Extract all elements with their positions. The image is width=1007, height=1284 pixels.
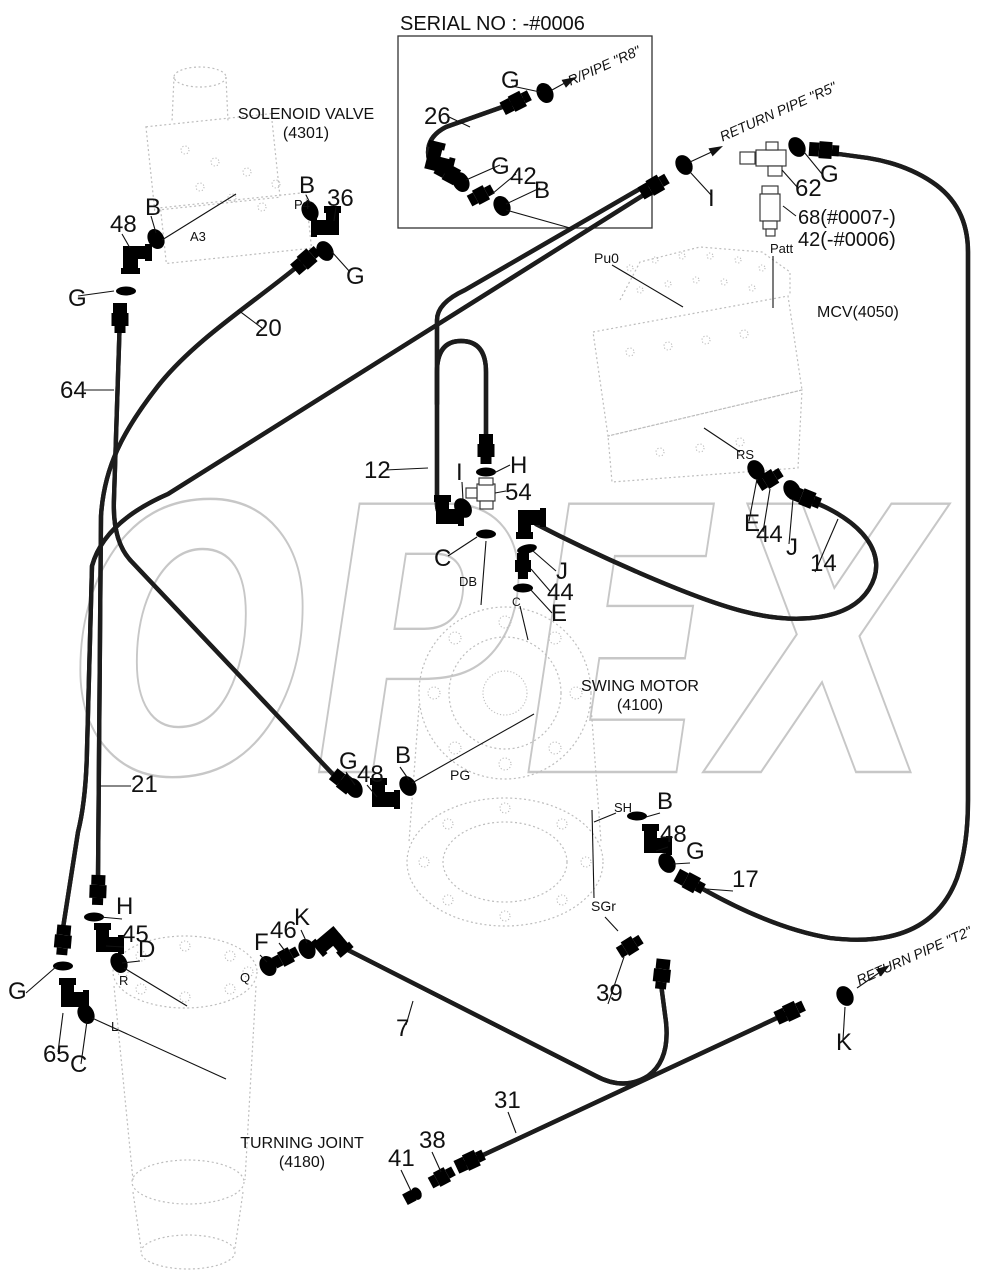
hose-fitting (773, 998, 807, 1026)
label-c: C (434, 545, 451, 572)
o-ring-B (490, 193, 514, 219)
hose-fitting (808, 140, 839, 159)
label-20: 20 (255, 315, 282, 342)
label-g: G (820, 161, 839, 188)
label-turning-joint: TURNING JOINT (240, 1135, 364, 1152)
label-pu0: Pu0 (594, 250, 619, 266)
hydraulic-piping-parts-diagram: OPEX (0, 0, 1007, 1284)
label-62: 62 (795, 175, 822, 202)
label-42: 42 (510, 163, 537, 190)
hose-fitting (112, 303, 129, 333)
elbow-48 (121, 244, 152, 274)
label-return-pipe-t2: RETURN PIPE "T2" (854, 922, 975, 988)
hose-fitting (673, 867, 707, 896)
label-rs: RS (736, 447, 754, 462)
label-42-0006: 42(-#0006) (798, 229, 896, 251)
label-g: G (8, 978, 27, 1005)
label-f: F (254, 929, 269, 956)
label-g: G (339, 748, 358, 775)
label-g: G (68, 285, 87, 312)
o-ring-K (833, 983, 857, 1009)
label-4180: (4180) (279, 1154, 325, 1171)
label-p4: P4 (294, 197, 310, 212)
label-sh: SH (614, 800, 632, 815)
label-b: B (657, 788, 673, 815)
label-l: L (111, 1019, 118, 1034)
label-i: I (456, 459, 463, 486)
nipple-38 (427, 1164, 457, 1190)
label-14: 14 (810, 550, 837, 577)
label-h: H (510, 452, 527, 479)
label-a3: A3 (190, 229, 206, 244)
label-r-pipe-r8: R/PIPE "R8" (565, 42, 643, 89)
o-ring-G (53, 962, 73, 971)
o-ring-H (476, 468, 496, 477)
label-41: 41 (388, 1145, 415, 1172)
label-48: 48 (357, 761, 384, 788)
label-17: 17 (732, 866, 759, 893)
label-b: B (534, 177, 550, 204)
label-sgr: SGr (591, 898, 616, 914)
o-ring-C (476, 530, 496, 539)
label-31: 31 (494, 1087, 521, 1114)
hose-fitting (453, 1147, 487, 1175)
label-38: 38 (419, 1127, 446, 1154)
label-g: G (491, 153, 510, 180)
label-serial-no-0006: SERIAL NO : -#0006 (400, 13, 585, 35)
label-g: G (686, 838, 705, 865)
label-b: B (299, 172, 315, 199)
turning-joint-ghost (113, 936, 257, 1269)
label-12: 12 (364, 457, 391, 484)
check-valve-68 (760, 186, 780, 236)
label-65: 65 (43, 1041, 70, 1068)
label-solenoid-valve: SOLENOID VALVE (238, 106, 374, 123)
hose-fitting (652, 958, 672, 990)
label-54: 54 (505, 479, 532, 506)
label-48: 48 (110, 211, 137, 238)
label-e: E (551, 600, 567, 627)
label-db: DB (459, 574, 477, 589)
label-i: I (708, 185, 715, 212)
label-21: 21 (131, 771, 158, 798)
hose-7 (344, 948, 667, 1084)
label-7: 7 (396, 1015, 409, 1042)
label-64: 64 (60, 377, 87, 404)
nipple-39 (615, 932, 646, 959)
diagram-canvas: OPEX (0, 0, 1007, 1284)
label-d: D (138, 936, 155, 963)
label-mcv-4050: MCV(4050) (817, 304, 899, 321)
elbow-fitting (311, 923, 354, 966)
label-36: 36 (327, 185, 354, 212)
label-j: J (786, 534, 798, 561)
label-46: 46 (270, 917, 297, 944)
label-q: Q (240, 970, 250, 985)
label-patt: Patt (770, 241, 794, 256)
plug-41 (402, 1186, 424, 1206)
nipple-42 (466, 182, 496, 208)
label-swing-motor: SWING MOTOR (581, 678, 699, 695)
label-48: 48 (660, 821, 687, 848)
o-ring-G (533, 80, 557, 106)
label-c: C (512, 595, 521, 609)
label-39: 39 (596, 980, 623, 1007)
label-b: B (145, 194, 161, 221)
elbow-45 (94, 923, 124, 954)
label-g: G (501, 67, 520, 94)
label-g: G (346, 263, 365, 290)
label-h: H (116, 893, 133, 920)
label-68-0007: 68(#0007-) (798, 207, 896, 229)
hose-fitting (89, 875, 107, 906)
hose-fitting (53, 924, 73, 955)
label-26: 26 (424, 103, 451, 130)
label-c: C (70, 1051, 87, 1078)
label-k: K (294, 904, 310, 931)
label-4301: (4301) (283, 125, 329, 142)
o-ring-E (513, 584, 533, 593)
o-ring-G (785, 134, 809, 160)
label-pg: PG (450, 767, 470, 783)
label-44: 44 (756, 521, 783, 548)
label-return-pipe-r5: RETURN PIPE "R5" (717, 78, 839, 144)
hose-12-loop (437, 341, 486, 444)
label-k: K (836, 1029, 852, 1056)
label-r: R (119, 973, 128, 988)
label-b: B (395, 742, 411, 769)
tee-fitting-62 (740, 142, 786, 176)
label-4100: (4100) (617, 697, 663, 714)
o-ring-G (116, 287, 136, 296)
arrow-r5-icon (708, 142, 725, 156)
